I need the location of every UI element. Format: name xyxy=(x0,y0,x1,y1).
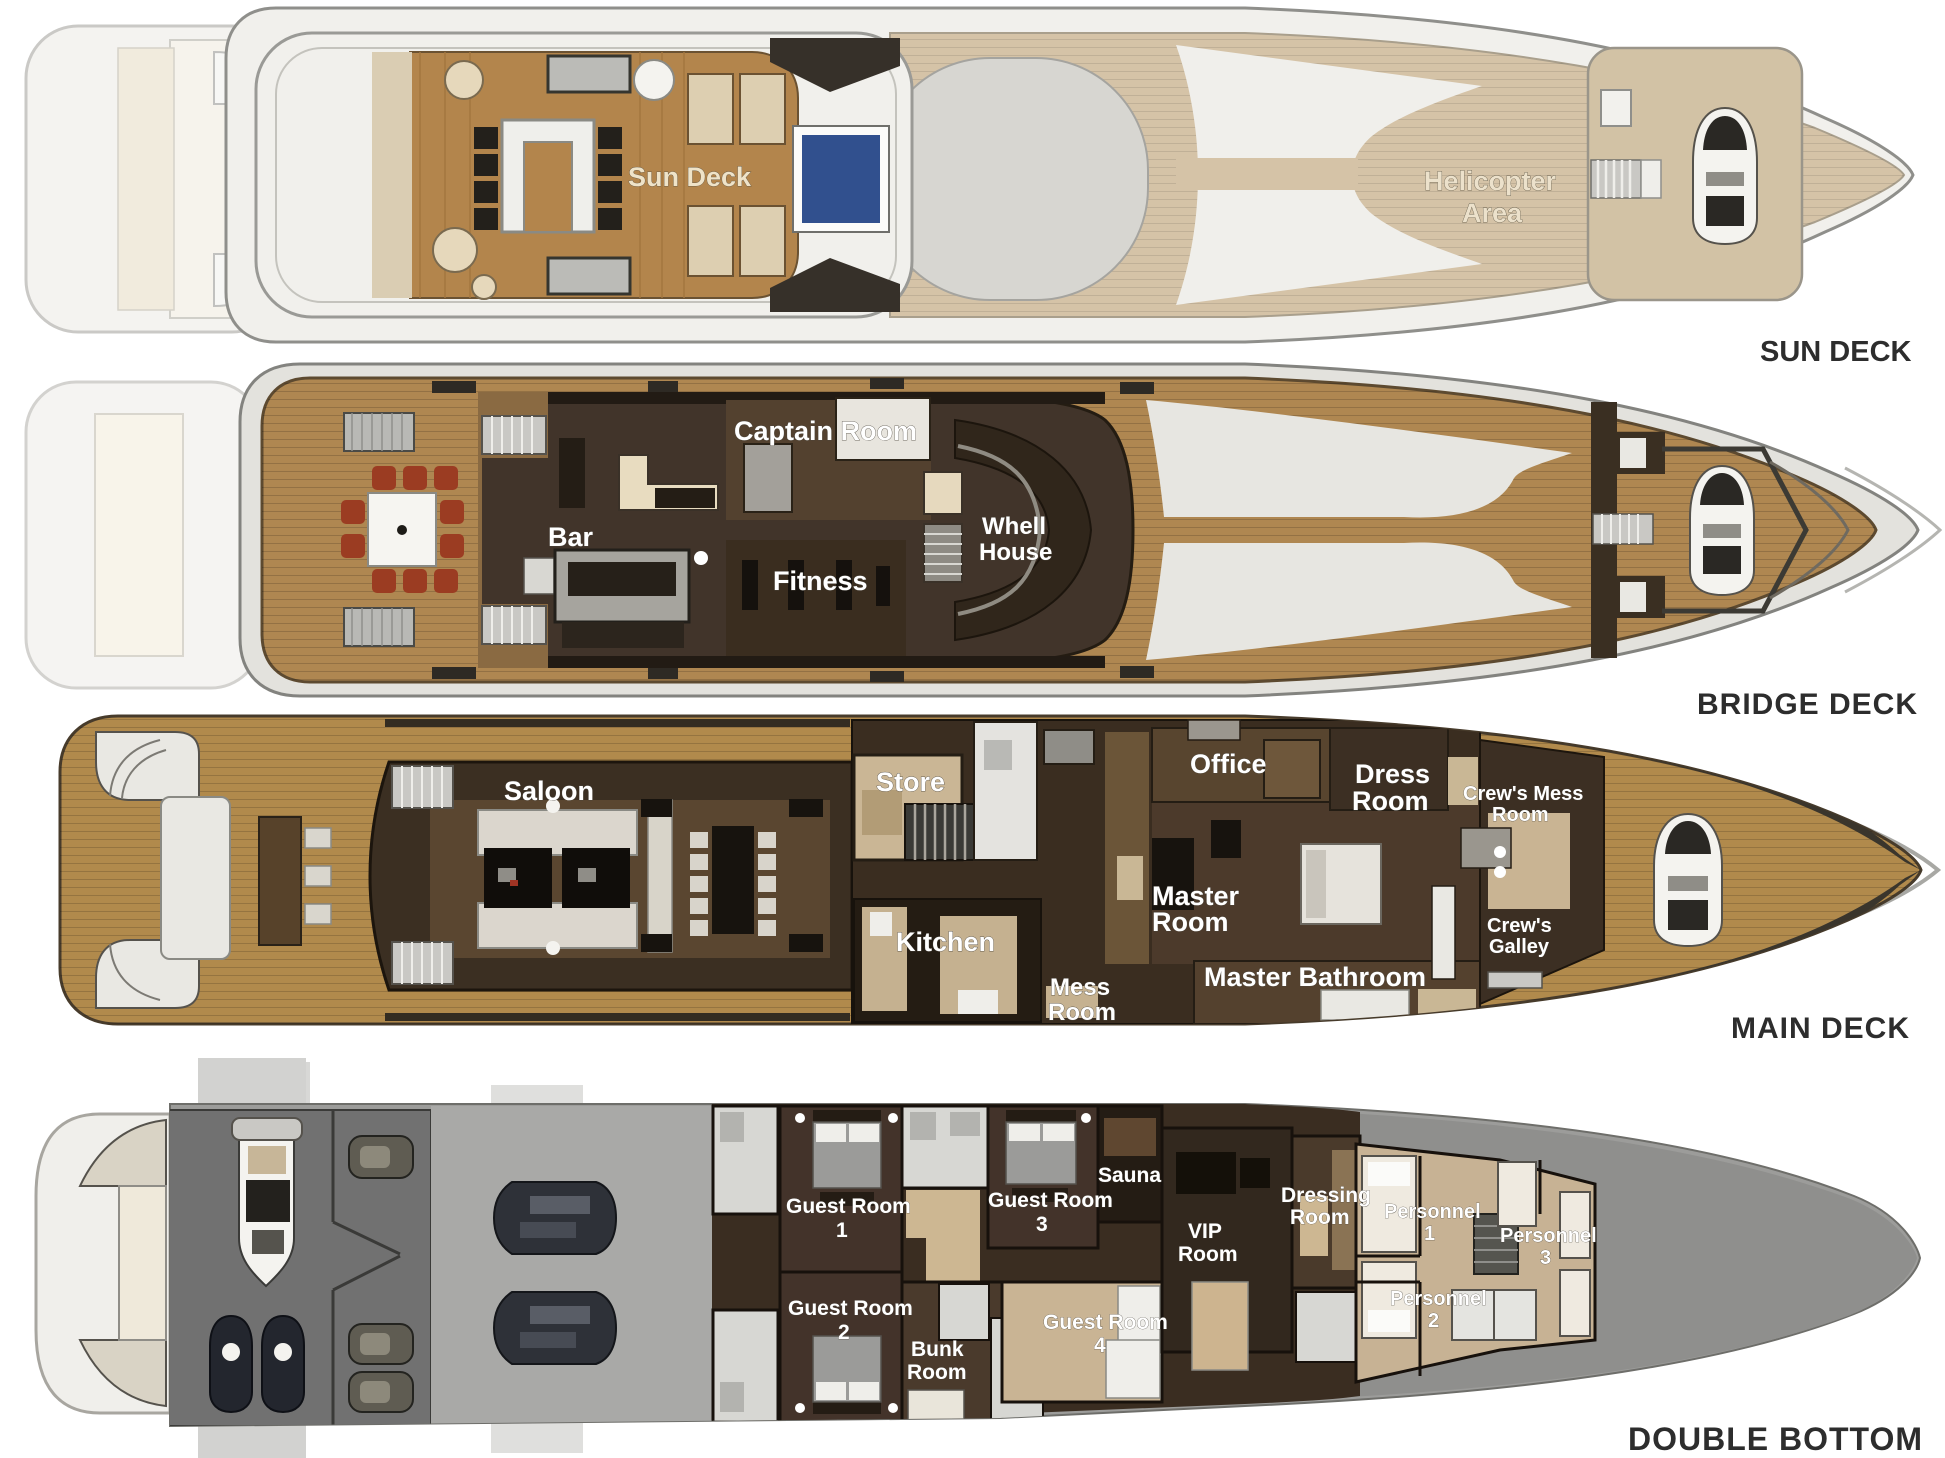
svg-text:Room: Room xyxy=(907,1361,967,1384)
svg-text:Guest Room: Guest Room xyxy=(786,1195,911,1218)
svg-text:Sun Deck: Sun Deck xyxy=(628,162,752,192)
svg-text:Personnel: Personnel xyxy=(1390,1288,1487,1310)
svg-text:Area: Area xyxy=(1462,198,1523,228)
svg-text:Dress: Dress xyxy=(1355,759,1430,789)
svg-text:Guest Room: Guest Room xyxy=(1043,1311,1168,1334)
svg-text:3: 3 xyxy=(1540,1247,1551,1269)
svg-text:4: 4 xyxy=(1094,1334,1106,1357)
svg-text:Room: Room xyxy=(1492,804,1549,826)
svg-text:BRIDGE DECK: BRIDGE DECK xyxy=(1697,688,1918,721)
svg-text:Personnel: Personnel xyxy=(1384,1201,1481,1223)
svg-text:1: 1 xyxy=(836,1219,848,1242)
svg-text:Office: Office xyxy=(1190,749,1267,779)
svg-text:Room: Room xyxy=(1178,1243,1238,1266)
svg-text:Personnel: Personnel xyxy=(1500,1225,1597,1247)
svg-text:Store: Store xyxy=(876,767,945,797)
svg-text:Room: Room xyxy=(1152,907,1229,937)
svg-text:House: House xyxy=(979,539,1052,566)
svg-text:2: 2 xyxy=(1428,1310,1439,1332)
svg-text:Room: Room xyxy=(1352,786,1429,816)
svg-text:Guest Room: Guest Room xyxy=(988,1189,1113,1212)
svg-text:VIP: VIP xyxy=(1188,1220,1222,1243)
svg-text:Room: Room xyxy=(1290,1206,1350,1229)
svg-text:SUN DECK: SUN DECK xyxy=(1760,336,1912,368)
svg-text:Whell: Whell xyxy=(982,513,1046,540)
svg-text:Kitchen: Kitchen xyxy=(896,927,995,957)
svg-text:Crew's: Crew's xyxy=(1487,915,1552,937)
svg-text:Master Bathroom: Master Bathroom xyxy=(1204,962,1426,992)
svg-text:Captain Room: Captain Room xyxy=(734,416,917,446)
svg-text:3: 3 xyxy=(1036,1213,1048,1236)
svg-text:MAIN DECK: MAIN DECK xyxy=(1731,1012,1910,1045)
svg-text:Sauna: Sauna xyxy=(1098,1164,1161,1187)
svg-text:Bar: Bar xyxy=(548,522,594,552)
svg-text:Fitness: Fitness xyxy=(773,566,868,596)
svg-text:Dressing: Dressing xyxy=(1281,1184,1371,1207)
svg-text:DOUBLE BOTTOM: DOUBLE BOTTOM xyxy=(1628,1421,1923,1457)
svg-text:Helicopter: Helicopter xyxy=(1424,166,1557,196)
svg-text:Crew's Mess: Crew's Mess xyxy=(1463,783,1583,805)
svg-text:Bunk: Bunk xyxy=(911,1338,964,1361)
svg-text:Mess: Mess xyxy=(1050,974,1110,1001)
svg-text:Guest Room: Guest Room xyxy=(788,1297,913,1320)
svg-text:Room: Room xyxy=(1048,999,1116,1026)
svg-text:2: 2 xyxy=(838,1321,850,1344)
svg-text:Saloon: Saloon xyxy=(504,776,594,806)
svg-text:Galley: Galley xyxy=(1489,936,1550,958)
svg-text:1: 1 xyxy=(1424,1223,1435,1245)
